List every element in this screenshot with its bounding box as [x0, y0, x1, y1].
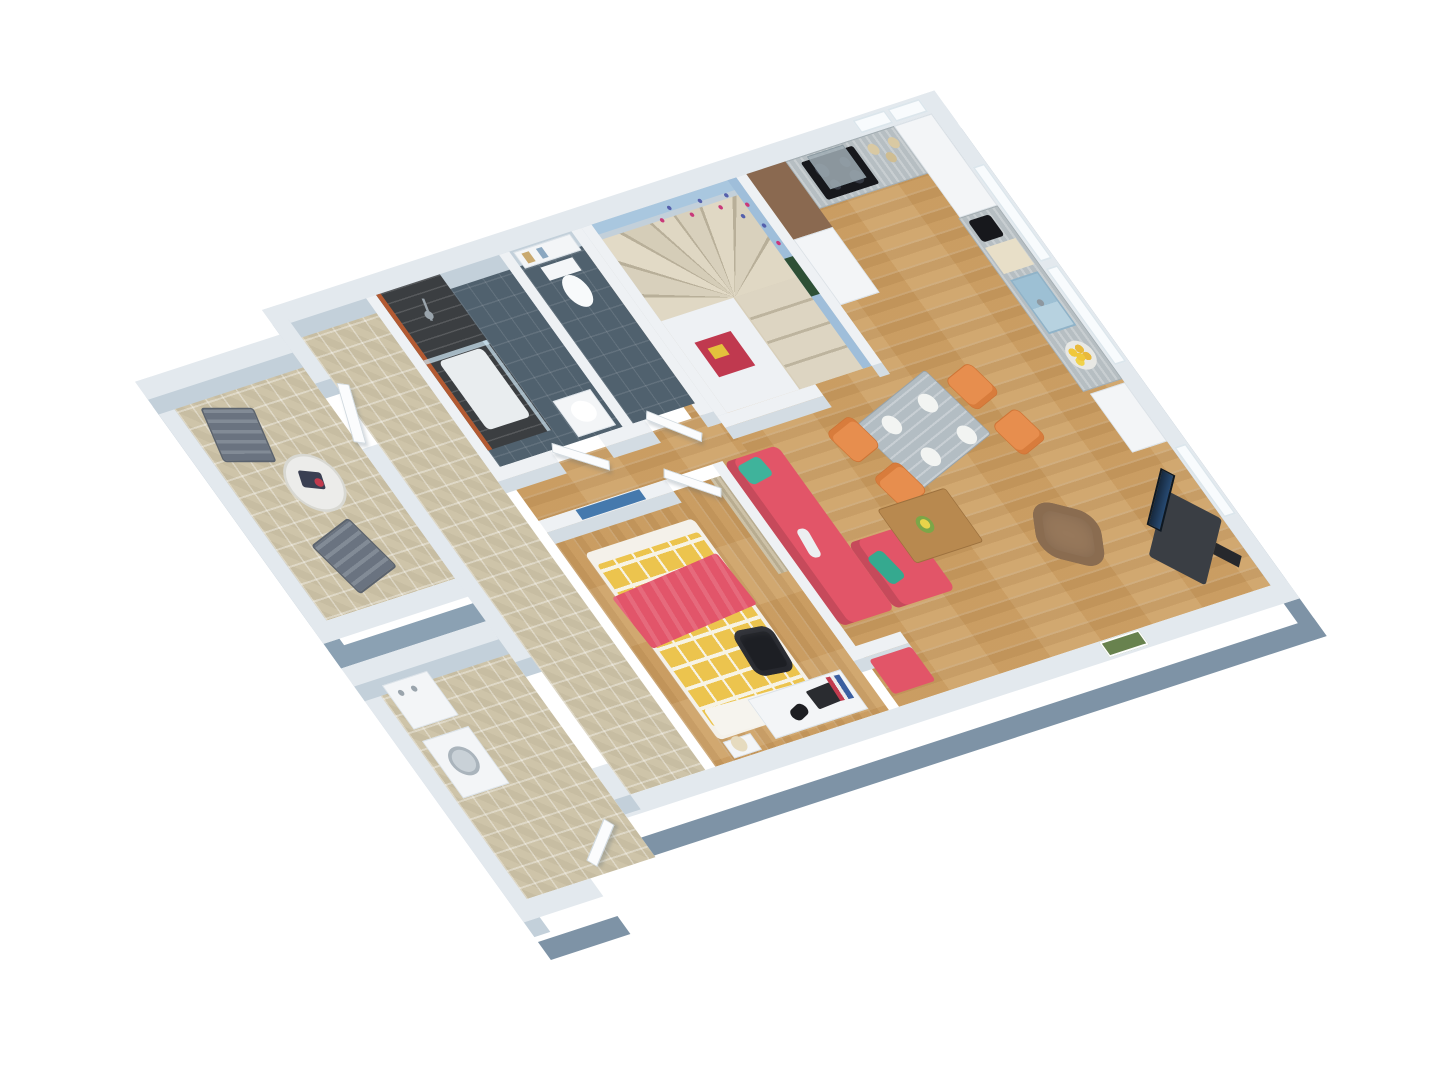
- floor-plan: [96, 91, 1347, 938]
- apartment-3d-render: [0, 0, 1440, 1080]
